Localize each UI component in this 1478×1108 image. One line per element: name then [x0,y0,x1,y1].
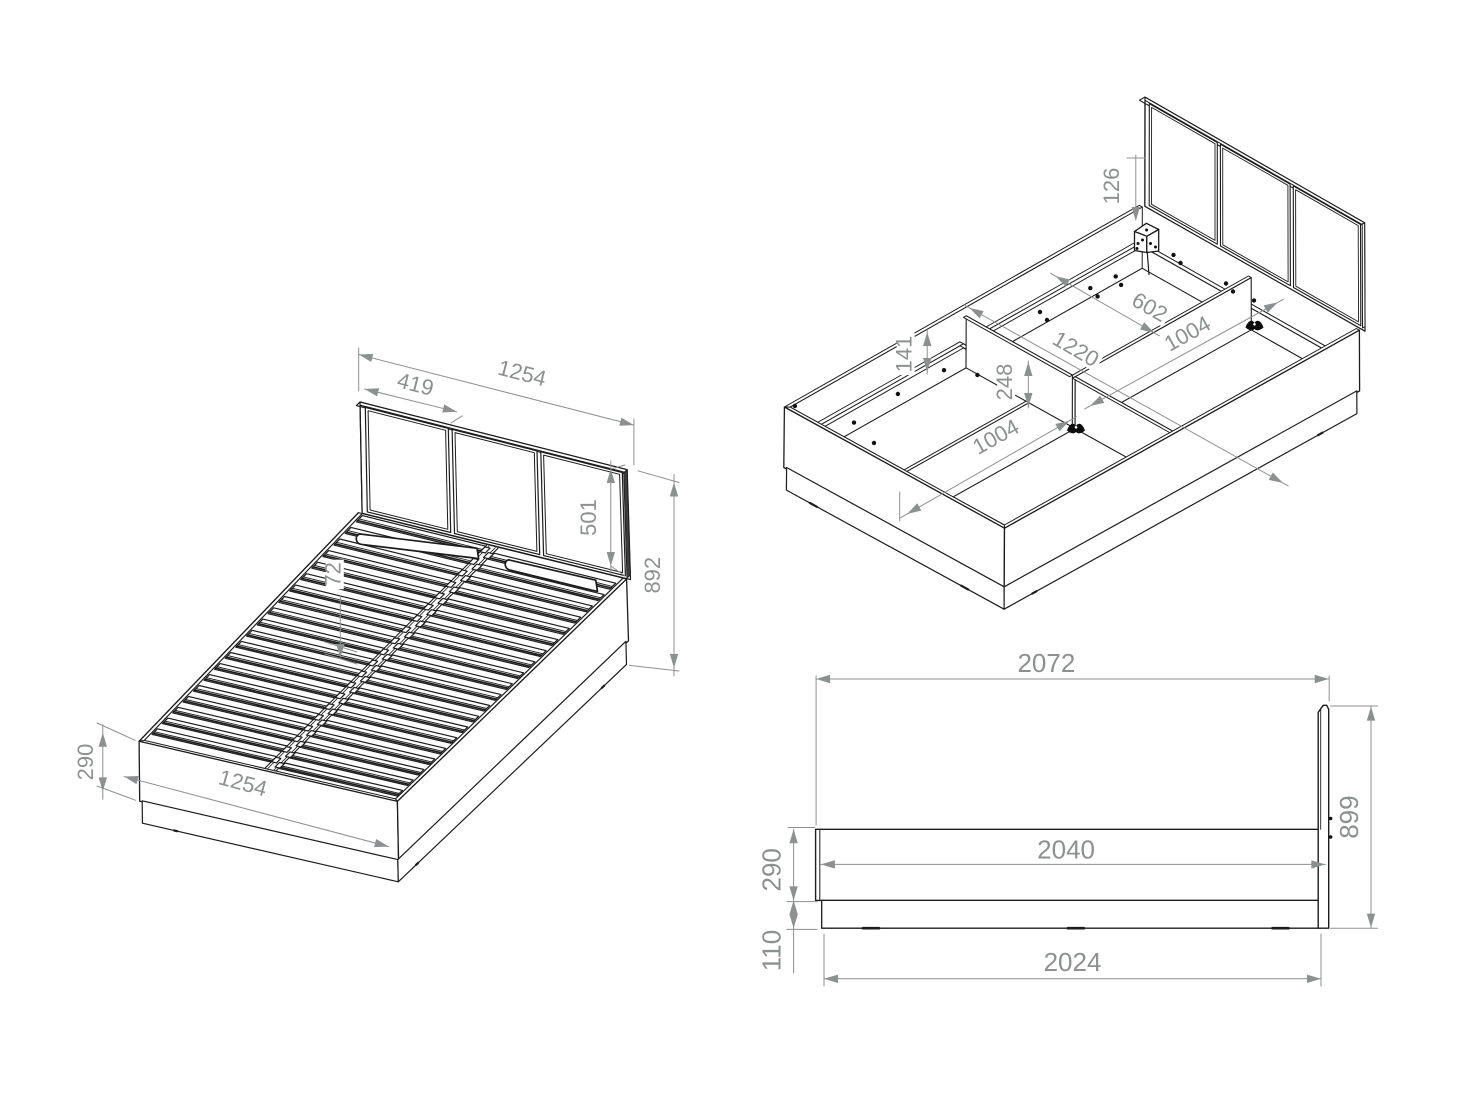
svg-text:892: 892 [640,557,665,594]
svg-text:2040: 2040 [1037,834,1095,864]
svg-text:899: 899 [1334,795,1364,838]
svg-text:141: 141 [892,336,917,373]
svg-text:290: 290 [757,848,787,891]
svg-text:501: 501 [576,499,601,536]
svg-text:290: 290 [73,744,98,781]
svg-text:2072: 2072 [1017,648,1075,678]
svg-text:110: 110 [757,930,787,971]
svg-text:72: 72 [321,562,346,586]
svg-text:2024: 2024 [1044,947,1102,977]
svg-text:126: 126 [1099,168,1124,205]
svg-text:248: 248 [992,364,1017,401]
